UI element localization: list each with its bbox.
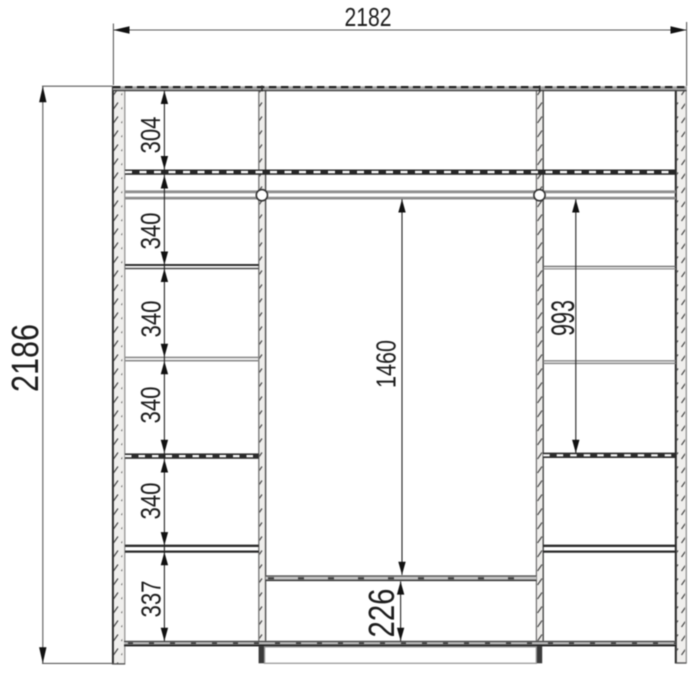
svg-text:304: 304: [135, 117, 166, 154]
svg-text:2182: 2182: [345, 2, 392, 32]
svg-text:993: 993: [545, 300, 581, 336]
svg-text:2186: 2186: [5, 324, 47, 392]
svg-text:337: 337: [136, 581, 167, 618]
svg-text:340: 340: [135, 387, 166, 424]
svg-text:340: 340: [136, 301, 167, 338]
svg-text:1460: 1460: [371, 340, 402, 388]
svg-text:340: 340: [135, 213, 166, 250]
svg-text:226: 226: [361, 589, 402, 638]
svg-text:340: 340: [135, 483, 166, 520]
